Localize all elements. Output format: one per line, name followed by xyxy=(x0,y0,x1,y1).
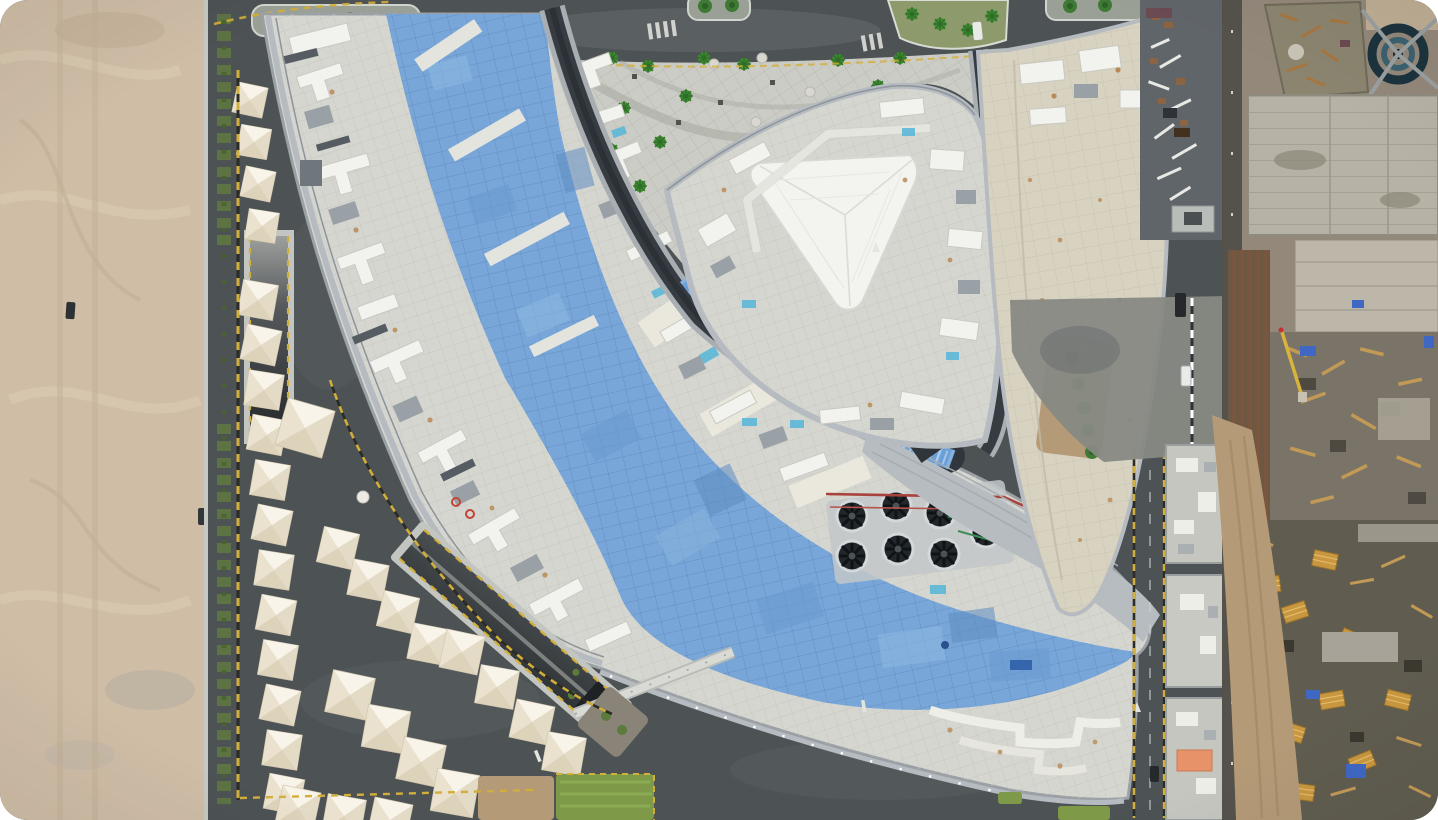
vignette-overlay xyxy=(0,0,1438,820)
screenshot-root xyxy=(0,0,1438,820)
aerial-photo xyxy=(0,0,1438,820)
